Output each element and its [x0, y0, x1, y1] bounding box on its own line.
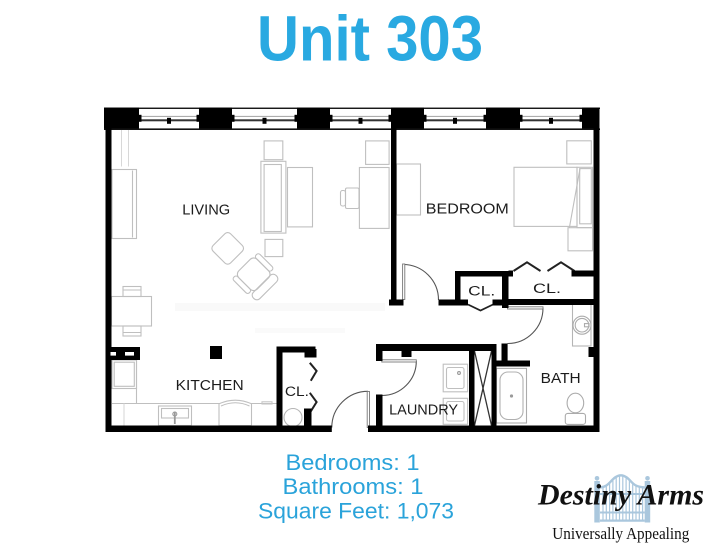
- svg-text:Bathrooms: 1: Bathrooms: 1: [283, 474, 424, 499]
- svg-text:Unit 303: Unit 303: [257, 3, 483, 75]
- svg-text:Bedrooms: 1: Bedrooms: 1: [286, 450, 420, 475]
- svg-text:CL.: CL.: [285, 384, 309, 399]
- svg-text:Destiny Arms: Destiny Arms: [537, 479, 704, 512]
- svg-text:CL.: CL.: [533, 281, 561, 296]
- svg-text:LAUNDRY: LAUNDRY: [389, 401, 458, 418]
- svg-text:BATH: BATH: [541, 370, 581, 387]
- svg-text:Square Feet: 1,073: Square Feet: 1,073: [258, 498, 454, 523]
- svg-text:BEDROOM: BEDROOM: [426, 200, 509, 217]
- svg-text:Universally Appealing: Universally Appealing: [552, 524, 689, 543]
- svg-text:LIVING: LIVING: [182, 201, 230, 218]
- svg-text:KITCHEN: KITCHEN: [176, 377, 244, 394]
- svg-text:CL.: CL.: [468, 284, 495, 299]
